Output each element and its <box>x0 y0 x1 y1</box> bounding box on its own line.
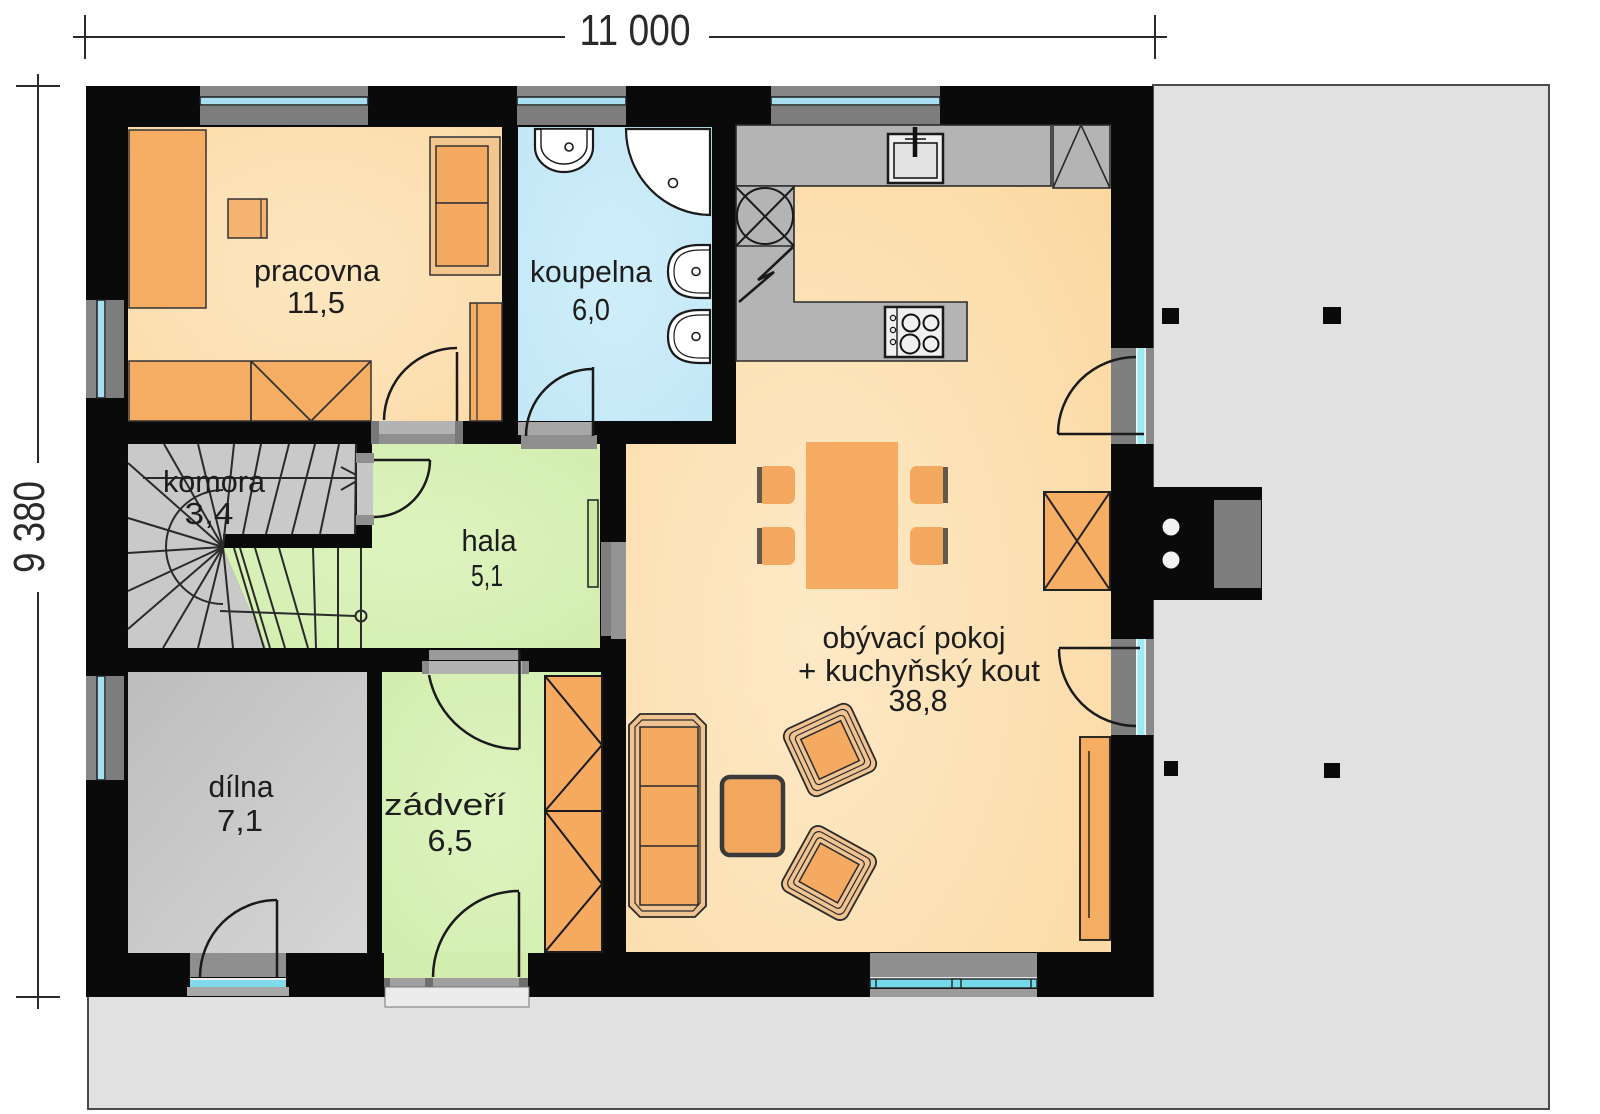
svg-text:6,5: 6,5 <box>428 823 473 858</box>
svg-text:5,1: 5,1 <box>471 558 503 593</box>
svg-text:7,1: 7,1 <box>217 803 263 838</box>
svg-text:11,5: 11,5 <box>287 285 345 320</box>
svg-text:6,0: 6,0 <box>572 292 610 327</box>
svg-text:3,4: 3,4 <box>185 496 234 531</box>
svg-text:11 000: 11 000 <box>580 6 691 55</box>
svg-text:dílna: dílna <box>209 769 275 804</box>
svg-text:obývací pokoj: obývací pokoj <box>823 620 1006 655</box>
svg-text:pracovna: pracovna <box>254 253 381 288</box>
svg-text:koupelna: koupelna <box>530 254 653 289</box>
svg-text:komora: komora <box>163 464 266 499</box>
svg-text:9 380: 9 380 <box>5 481 54 573</box>
svg-text:zádveří: zádveří <box>384 787 506 822</box>
svg-text:38,8: 38,8 <box>889 683 948 718</box>
svg-text:hala: hala <box>462 523 518 558</box>
